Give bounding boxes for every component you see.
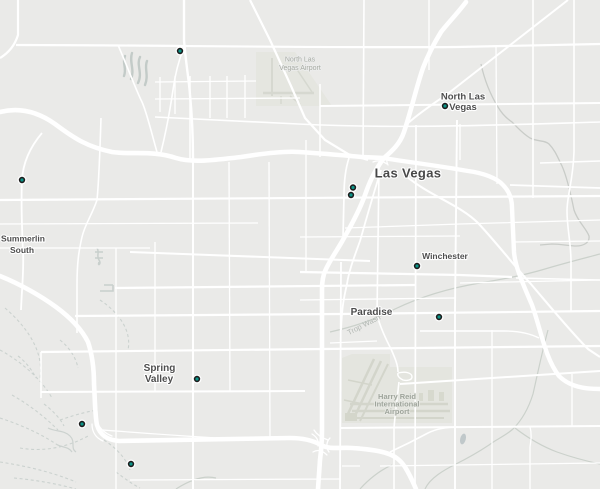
svg-text:Airport: Airport	[385, 407, 411, 416]
svg-text:Valley: Valley	[145, 374, 174, 385]
svg-text:North Las: North Las	[285, 57, 316, 64]
svg-text:Summerlin: Summerlin	[1, 234, 45, 244]
svg-text:North Las: North Las	[441, 92, 485, 103]
svg-text:Spring: Spring	[144, 363, 176, 374]
svg-text:Vegas: Vegas	[449, 102, 476, 113]
svg-text:Winchester: Winchester	[422, 251, 468, 261]
svg-text:South: South	[10, 245, 34, 255]
svg-text:Vegas Airport: Vegas Airport	[279, 65, 321, 72]
svg-text:Paradise: Paradise	[351, 307, 393, 318]
svg-text:Las Vegas: Las Vegas	[375, 166, 442, 181]
